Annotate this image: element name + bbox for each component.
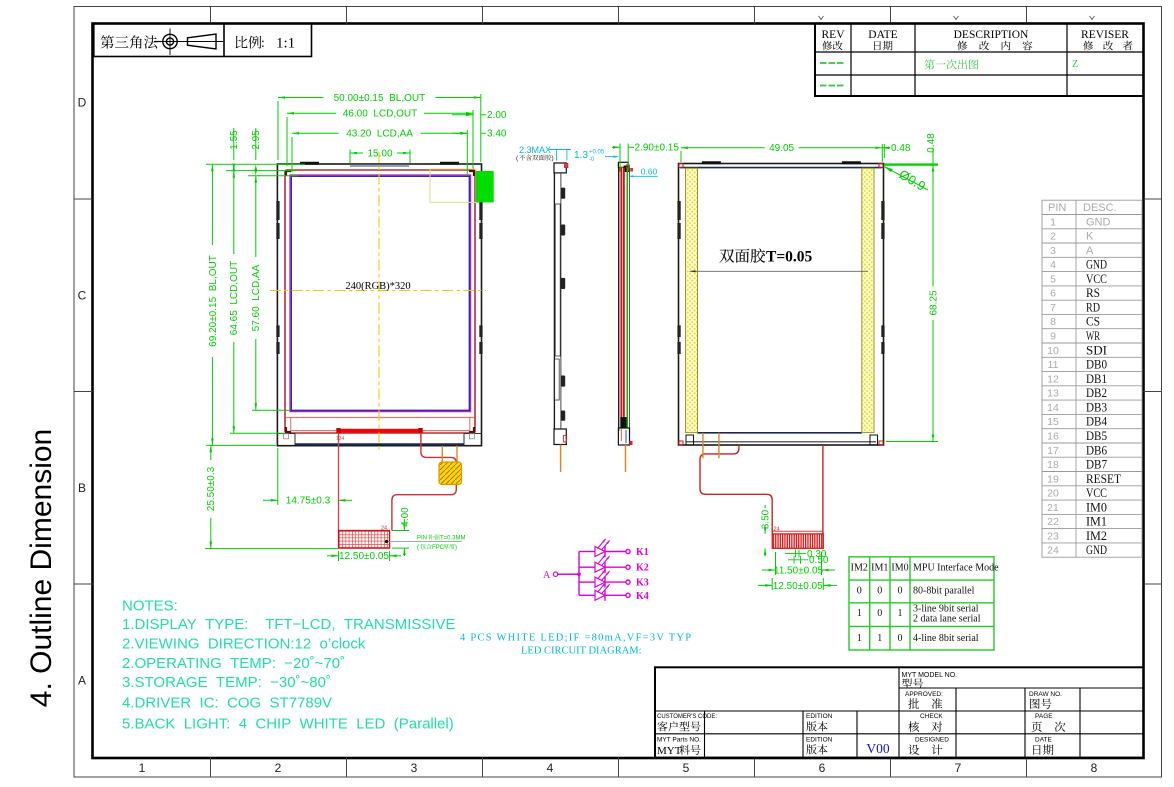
svg-text:+0.05: +0.05: [589, 150, 605, 156]
svg-text:24: 24: [381, 526, 387, 532]
svg-text:134: 134: [336, 436, 345, 442]
svg-text:DATE: DATE: [1035, 737, 1053, 744]
svg-text:4: 4: [547, 761, 554, 775]
svg-text:MPU Interface Mode: MPU Interface Mode: [913, 563, 999, 574]
svg-text:2: 2: [1050, 231, 1056, 243]
svg-text:14.75±0.3: 14.75±0.3: [286, 496, 331, 507]
svg-text:(: (: [417, 545, 419, 551]
svg-text:0.48: 0.48: [891, 143, 911, 154]
svg-text:1.55: 1.55: [229, 130, 240, 150]
svg-text:0.60: 0.60: [641, 167, 658, 177]
svg-text:IM2: IM2: [1086, 528, 1107, 543]
svg-text:43.20 LCD,AA: 43.20 LCD,AA: [346, 129, 413, 140]
svg-text:64.65 LCD,OUT: 64.65 LCD,OUT: [229, 261, 240, 335]
svg-text:1: 1: [857, 608, 862, 619]
svg-text:REVISER: REVISER: [1081, 29, 1129, 41]
svg-text:DB3: DB3: [1086, 399, 1107, 414]
svg-text:IM1: IM1: [1086, 514, 1107, 529]
svg-text:K: K: [1086, 231, 1094, 243]
svg-text:2.95: 2.95: [251, 130, 262, 150]
svg-text:4-line 8bit serial: 4-line 8bit serial: [913, 633, 979, 644]
svg-text:Z: Z: [1072, 59, 1078, 70]
svg-text:DB1: DB1: [1086, 371, 1107, 386]
svg-text:50.00±0.15 BL,OUT: 50.00±0.15 BL,OUT: [334, 93, 426, 104]
svg-text:GND: GND: [1086, 542, 1107, 557]
svg-text:DB6: DB6: [1086, 442, 1107, 457]
svg-text:1: 1: [1050, 216, 1056, 228]
svg-text:6: 6: [1050, 288, 1056, 300]
svg-text:0: 0: [898, 586, 903, 597]
svg-text:C: C: [78, 289, 87, 303]
svg-text:APPROVED:: APPROVED:: [905, 691, 943, 698]
svg-text:GND: GND: [1086, 216, 1111, 228]
svg-text:RD: RD: [1086, 300, 1100, 315]
svg-text:23: 23: [1047, 530, 1059, 542]
svg-text:IM2: IM2: [851, 563, 868, 574]
svg-text:0: 0: [877, 586, 882, 597]
svg-text:240(RGB)*320: 240(RGB)*320: [345, 281, 410, 292]
svg-text:57.60 LCD,AA: 57.60 LCD,AA: [251, 264, 262, 331]
svg-text:0: 0: [898, 633, 903, 644]
svg-text:11.50±0.05: 11.50±0.05: [774, 565, 824, 576]
svg-text:3.40: 3.40: [487, 129, 507, 140]
svg-text:DB4: DB4: [1086, 414, 1107, 429]
svg-text:LED CIRCUIT DIAGRAM:: LED CIRCUIT DIAGRAM:: [521, 646, 642, 657]
svg-text:FPC: FPC: [432, 545, 445, 551]
svg-text:5: 5: [683, 761, 690, 775]
svg-text:DB5: DB5: [1086, 428, 1107, 443]
svg-text:1: 1: [898, 608, 903, 619]
svg-text:8: 8: [1091, 761, 1098, 775]
svg-text:RESET: RESET: [1086, 471, 1121, 486]
svg-text:69.20±0.15 BL,OUT: 69.20±0.15 BL,OUT: [208, 255, 219, 347]
svg-text:WR: WR: [1086, 328, 1100, 343]
svg-text:K4: K4: [636, 591, 649, 602]
svg-text:80-8bit parallel: 80-8bit parallel: [913, 586, 975, 597]
svg-text:NOTES:: NOTES:: [122, 598, 178, 615]
svg-text:A: A: [543, 570, 551, 581]
svg-text:CUSTOMER'S CODE:: CUSTOMER'S CODE:: [657, 714, 717, 720]
svg-text:DRAW NO.: DRAW NO.: [1029, 691, 1062, 698]
svg-text:6: 6: [819, 761, 826, 775]
svg-text:VCC: VCC: [1086, 271, 1107, 286]
svg-text:19: 19: [1047, 473, 1059, 485]
svg-text:11: 11: [1048, 359, 1059, 371]
svg-text:24: 24: [774, 527, 780, 533]
svg-text:RS: RS: [1086, 285, 1100, 300]
svg-text:2.3MAX: 2.3MAX: [519, 145, 551, 155]
svg-text:GND: GND: [1086, 257, 1107, 272]
svg-text:24: 24: [1047, 545, 1059, 557]
svg-text:15: 15: [1047, 416, 1059, 428]
svg-text:15.00: 15.00: [367, 148, 392, 159]
svg-text:VCC: VCC: [1086, 485, 1107, 500]
svg-text:V00: V00: [866, 741, 889, 756]
svg-text:DATE: DATE: [868, 29, 897, 41]
svg-text:PIN: PIN: [1048, 202, 1066, 214]
svg-text:5.BACK LIGHT: 4 CHIP WHITE: 5.BACK LIGHT: 4 CHIP WHITE LED (Parallel…: [122, 716, 454, 733]
svg-text:DB2: DB2: [1086, 385, 1107, 400]
svg-text:4: 4: [1050, 259, 1056, 271]
svg-text:0.48: 0.48: [926, 133, 937, 153]
svg-text:A: A: [1086, 245, 1094, 257]
svg-text:1: 1: [139, 761, 146, 775]
svg-text:9: 9: [1050, 331, 1056, 343]
svg-text:D: D: [78, 96, 87, 110]
svg-text:2.90±0.15: 2.90±0.15: [635, 143, 680, 154]
svg-text:): ): [552, 155, 554, 162]
svg-text:PAGE: PAGE: [1035, 713, 1053, 720]
svg-text:2.00: 2.00: [487, 110, 507, 121]
svg-text:DB0: DB0: [1086, 357, 1107, 372]
svg-text:25.50±0.3: 25.50±0.3: [206, 466, 217, 511]
svg-text:16: 16: [1047, 431, 1059, 443]
svg-text:17: 17: [1047, 445, 1059, 457]
svg-text:22: 22: [1047, 516, 1059, 528]
svg-text:7: 7: [1050, 302, 1056, 314]
svg-text:SDI: SDI: [1086, 342, 1107, 357]
svg-text:21: 21: [1047, 502, 1059, 514]
svg-text:2 data lane serial: 2 data lane serial: [913, 614, 981, 625]
svg-text:B: B: [78, 481, 86, 495]
svg-text:CS: CS: [1086, 314, 1100, 329]
svg-text:46.00 LCD,OUT: 46.00 LCD,OUT: [343, 109, 417, 120]
svg-text:12: 12: [1047, 373, 1059, 385]
svg-text::: :: [261, 35, 265, 50]
svg-text:T=0.05: T=0.05: [766, 249, 813, 266]
svg-text:IM0: IM0: [1086, 499, 1107, 514]
svg-text:1.DISPLAY TYPE: TFT−LCD,: 1.DISPLAY TYPE: TFT−LCD, TRANSMISSIVE: [122, 616, 456, 633]
svg-text:CHECK: CHECK: [920, 713, 943, 720]
svg-text:DESIGNED: DESIGNED: [915, 737, 949, 744]
svg-text:12.50±0.05: 12.50±0.05: [773, 581, 823, 592]
svg-text:DESCRIPTION: DESCRIPTION: [954, 29, 1029, 41]
svg-text:DB7: DB7: [1086, 457, 1107, 472]
svg-text:14: 14: [1047, 402, 1059, 414]
svg-text:K3: K3: [636, 578, 649, 589]
svg-text:MYT: MYT: [657, 745, 682, 757]
svg-text:5: 5: [1050, 273, 1056, 285]
svg-text:IM1: IM1: [871, 563, 888, 574]
svg-text:MYT MODEL NO.: MYT MODEL NO.: [902, 672, 958, 679]
svg-text:0: 0: [877, 608, 882, 619]
svg-text:3: 3: [411, 761, 418, 775]
svg-text:T=0.3MM: T=0.3MM: [440, 535, 466, 541]
svg-text:10: 10: [1047, 345, 1059, 357]
svg-text:3: 3: [1050, 245, 1056, 257]
svg-text:18: 18: [1047, 459, 1059, 471]
svg-text:DESC.: DESC.: [1083, 202, 1117, 214]
svg-text:4.00: 4.00: [400, 507, 411, 527]
svg-text:): ): [455, 545, 457, 551]
svg-text:12.50±0.05: 12.50±0.05: [339, 551, 389, 562]
svg-text:EDITION: EDITION: [806, 737, 833, 744]
svg-text:A: A: [78, 674, 86, 688]
svg-text:REV: REV: [822, 29, 846, 41]
svg-text:49.05: 49.05: [769, 143, 794, 154]
svg-text:1.3: 1.3: [574, 150, 588, 161]
svg-text:PIN: PIN: [417, 535, 427, 541]
svg-text:2.VIEWING DIRECTION:12 o’clo: 2.VIEWING DIRECTION:12 o’clock: [122, 636, 366, 653]
svg-text:4. Outline Dimension: 4. Outline Dimension: [25, 429, 58, 707]
svg-text:4 PCS WHITE LED;IF =80mA,VF=3V: 4 PCS WHITE LED;IF =80mA,VF=3V TYP: [460, 633, 692, 644]
svg-text:3.STORAGE TEMP: −30˚~80˚: 3.STORAGE TEMP: −30˚~80˚: [122, 674, 331, 691]
svg-text:EDITION: EDITION: [806, 713, 833, 720]
svg-text:MYT Parts NO.: MYT Parts NO.: [657, 737, 701, 744]
svg-text:IM0: IM0: [891, 563, 908, 574]
svg-text:0: 0: [857, 586, 862, 597]
svg-text:2: 2: [275, 761, 282, 775]
svg-text:1: 1: [877, 633, 882, 644]
svg-text:4.DRIVER IC: COG ST7789V: 4.DRIVER IC: COG ST7789V: [122, 695, 332, 712]
svg-text:7: 7: [955, 761, 962, 775]
svg-text:8: 8: [1050, 316, 1056, 328]
svg-text:1: 1: [857, 633, 862, 644]
svg-text:68.25: 68.25: [928, 290, 939, 315]
svg-text:1:1: 1:1: [276, 36, 295, 52]
svg-text:K1: K1: [636, 547, 649, 558]
svg-text:K2: K2: [636, 563, 649, 574]
svg-text:2.OPERATING TEMP: −20˚~70˚: 2.OPERATING TEMP: −20˚~70˚: [122, 655, 345, 672]
svg-text:3.50: 3.50: [761, 509, 772, 529]
svg-text:13: 13: [1047, 388, 1059, 400]
svg-text:20: 20: [1047, 488, 1059, 500]
svg-text:-0: -0: [589, 157, 595, 163]
